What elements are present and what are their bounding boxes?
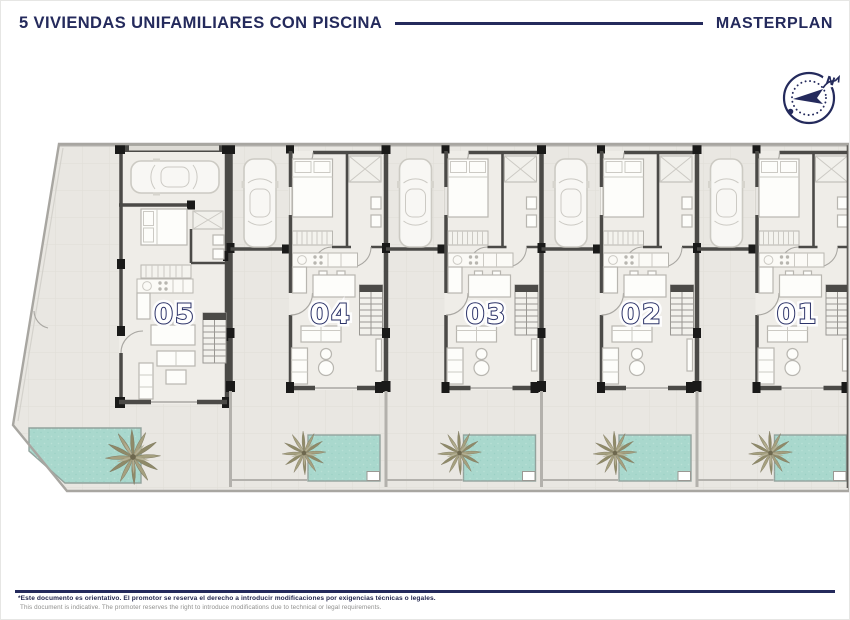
footer-rule	[15, 590, 835, 593]
unit-number-05: 05	[154, 299, 196, 330]
unit-number-04: 04	[310, 299, 352, 330]
unit-number-01: 01	[777, 299, 819, 330]
disclaimer-english: This document is indicative. The promote…	[20, 604, 382, 611]
unit-number-02: 02	[621, 299, 663, 330]
masterplan-drawing: 05 05 04 04 03 03 02 02 01 01	[1, 1, 850, 620]
disclaimer-spanish: *Este documento es orientativo. El promo…	[18, 595, 436, 602]
masterplan-page: 5 VIVIENDAS UNIFAMILIARES CON PISCINA MA…	[0, 0, 850, 620]
unit-number-03: 03	[466, 299, 508, 330]
